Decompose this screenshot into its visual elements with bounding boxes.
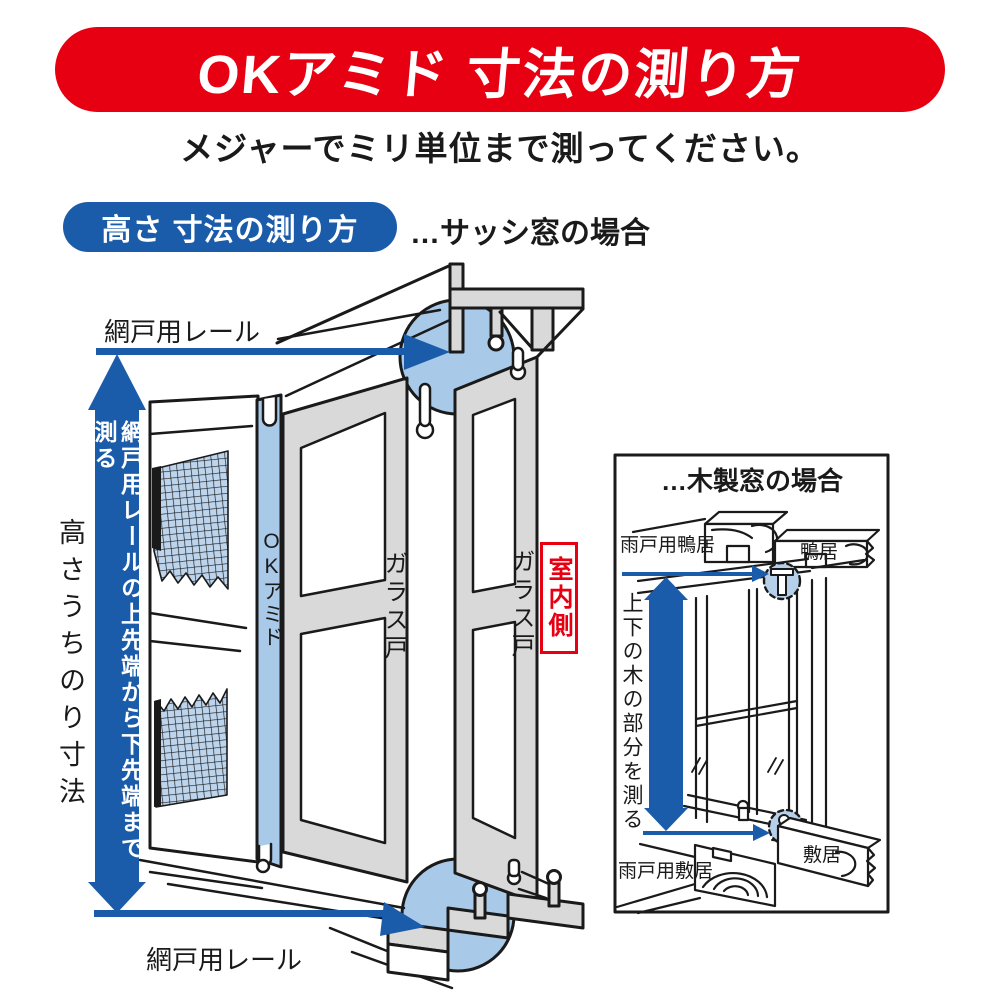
height-arrow-top-head	[88, 354, 146, 410]
top-rail-label: 網戸用レール	[104, 318, 260, 348]
bottom-rail-label: 網戸用レール	[146, 946, 302, 976]
bottom-rail-pointer-line	[94, 910, 386, 917]
indoor-side-label: 室内側	[541, 556, 577, 640]
section-badge-label: 高さ 寸法の測り方	[101, 205, 358, 249]
wooden-measure-arrow	[644, 577, 688, 831]
mesh-patch-bottom	[156, 689, 227, 807]
page-subtitle: メジャーでミリ単位まで測ってください。	[0, 122, 1000, 170]
amado-shikii-label: 雨戸用敷居	[618, 861, 713, 883]
top-rail-pointer-line	[96, 348, 404, 355]
amado-kamoi-label: 雨戸用鴨居	[620, 535, 715, 557]
page: OKアミド 寸法の測り方 メジャーでミリ単位まで測ってください。 高さ 寸法の測…	[0, 0, 1000, 1000]
kamoi-label: 鴨居	[800, 542, 838, 564]
sash-case-note: …サッシ窓の場合	[410, 208, 650, 252]
mesh-patch-top	[154, 451, 228, 589]
screen-strip-label: OKアミド	[256, 530, 283, 649]
page-title: OKアミド 寸法の測り方	[194, 30, 806, 109]
screen-panel	[150, 396, 262, 888]
inner-height-label: 高さうちのり寸法	[54, 518, 85, 852]
indoor-side-badge: 室内側	[540, 542, 578, 654]
glass-door-1-label: ガラス戸	[378, 551, 407, 663]
title-banner: OKアミド 寸法の測り方	[55, 27, 945, 112]
wooden-panel-title: …木製窓の場合	[618, 467, 886, 497]
shikii-label: 敷居	[803, 845, 841, 867]
wooden-window-illustration	[615, 455, 888, 913]
height-arrow-bottom-head	[88, 882, 146, 913]
glass-door-2-label: ガラス戸	[505, 549, 534, 661]
height-measure-instruction: 網戸用レールの上先端から下先端まで測る	[95, 420, 139, 876]
wood-measure-instruction: 上下の木の部分を測る	[616, 592, 643, 832]
section-badge: 高さ 寸法の測り方	[63, 202, 397, 252]
kamoi-groove-detail	[764, 563, 800, 599]
